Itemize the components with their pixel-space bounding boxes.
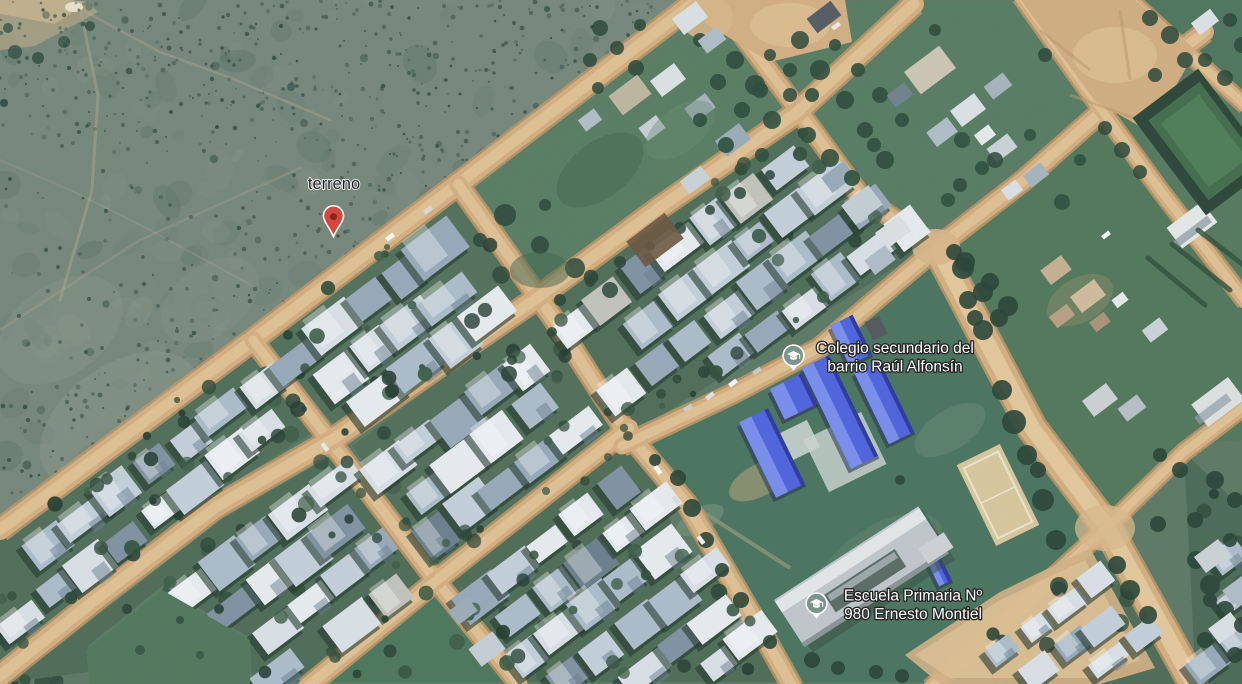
svg-text:Colegio secundario del: Colegio secundario del	[816, 340, 974, 357]
svg-text:980 Ernesto Montiel: 980 Ernesto Montiel	[844, 606, 982, 623]
svg-text:terreno: terreno	[308, 175, 360, 193]
svg-text:Escuela Primaria Nº: Escuela Primaria Nº	[844, 588, 983, 605]
svg-text:barrio Raúl Alfonsín: barrio Raúl Alfonsín	[827, 359, 962, 376]
